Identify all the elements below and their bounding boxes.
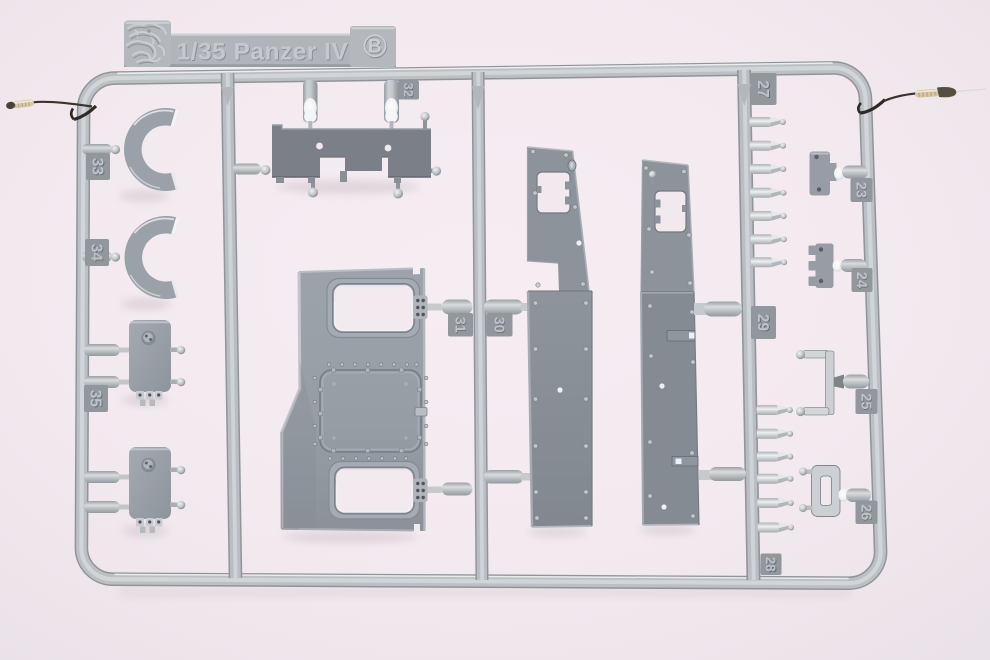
svg-text:35: 35 (87, 390, 104, 408)
svg-text:26: 26 (857, 504, 873, 520)
svg-text:32: 32 (401, 83, 416, 97)
svg-text:25: 25 (857, 393, 873, 409)
svg-text:1/35 Panzer IV: 1/35 Panzer IV (177, 38, 349, 65)
svg-text:23: 23 (852, 182, 868, 198)
svg-text:31: 31 (451, 317, 467, 333)
svg-text:34: 34 (88, 244, 105, 262)
svg-text:30: 30 (490, 317, 506, 333)
svg-text:B: B (368, 37, 382, 58)
svg-text:28: 28 (763, 557, 778, 573)
svg-text:29: 29 (754, 314, 771, 332)
svg-text:33: 33 (89, 158, 106, 176)
svg-text:27: 27 (754, 80, 771, 97)
svg-text:24: 24 (853, 272, 869, 288)
